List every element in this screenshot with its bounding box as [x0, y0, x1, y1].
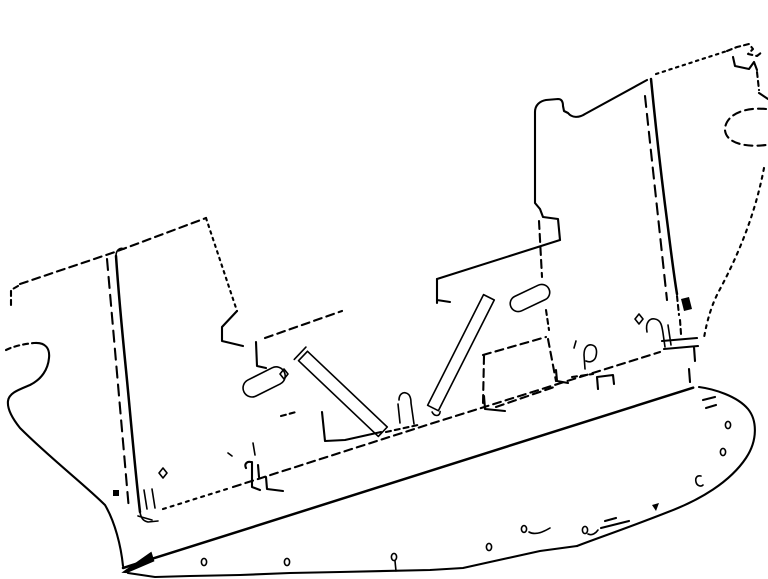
lower-flange: [128, 387, 755, 577]
right-pillar: [635, 79, 698, 382]
diagonal-brace-right: [425, 295, 496, 417]
corrugated-band: [343, 296, 430, 327]
flange-holes: [201, 397, 730, 571]
center-pillar: [535, 80, 647, 240]
corner-hook: [725, 109, 766, 146]
rib-bracket-left: [240, 364, 288, 400]
sill-rail: [116, 375, 695, 574]
left-panel-outline: [6, 218, 206, 566]
panel-line-art: [0, 0, 768, 579]
diagram-canvas: [0, 0, 768, 579]
diagonal-brace-left: [294, 347, 388, 438]
right-edge: [704, 44, 768, 338]
